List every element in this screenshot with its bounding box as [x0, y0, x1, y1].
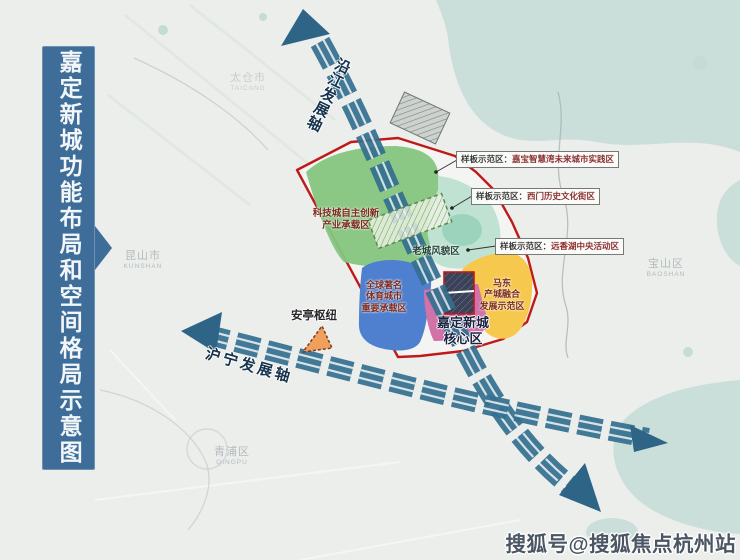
region-label-baoshan: 宝山区 BAOSHAN	[638, 258, 694, 279]
zone-label-core-area: 嘉定新城 核心区	[430, 315, 496, 348]
planning-map: 嘉定新城功能布局和空间格局示意图 沿江发展轴 沪宁发展轴 科技城自主创新 产业承…	[0, 0, 740, 560]
zone-label-old-town: 老城风貌区	[406, 246, 466, 258]
callout-prefix: 样板示范区：	[500, 241, 551, 251]
region-label-qingpu: 青浦区 QINGPU	[204, 446, 260, 467]
callout-smart-bay: 样板示范区：嘉宝智慧湾未来城市实践区	[456, 151, 619, 168]
callout-prefix: 样板示范区：	[476, 191, 527, 201]
callout-yuanxiang-lake: 样板示范区：远香湖中央活动区	[495, 238, 624, 255]
zone-label-sports-city: 全球著名 体育城市 重要承载区	[360, 280, 408, 314]
map-title: 嘉定新城功能布局和空间格局示意图	[56, 50, 81, 466]
banner-arrow-icon	[95, 226, 112, 270]
zone-label-madong: 马东 产城融合 发展示范区	[476, 278, 528, 312]
title-banner: 嘉定新城功能布局和空间格局示意图	[42, 46, 95, 470]
callout-ximen-historic: 样板示范区：西门历史文化街区	[471, 188, 600, 205]
sohu-watermark: 搜狐号@搜狐焦点杭州站	[506, 527, 737, 557]
zone-label-tech-city: 科技城自主创新 产业承载区	[306, 208, 386, 232]
zone-label-anting-hub: 安亭枢纽	[286, 309, 342, 323]
callout-name: 远香湖中央活动区	[551, 241, 619, 251]
region-label-kunshan: 昆山市 KUNSHAN	[115, 250, 171, 271]
callout-name: 西门历史文化街区	[527, 191, 595, 201]
region-label-taicang: 太仓市 TAICANG	[220, 72, 276, 93]
callout-prefix: 样板示范区：	[461, 154, 512, 164]
callout-name: 嘉宝智慧湾未来城市实践区	[512, 154, 614, 164]
